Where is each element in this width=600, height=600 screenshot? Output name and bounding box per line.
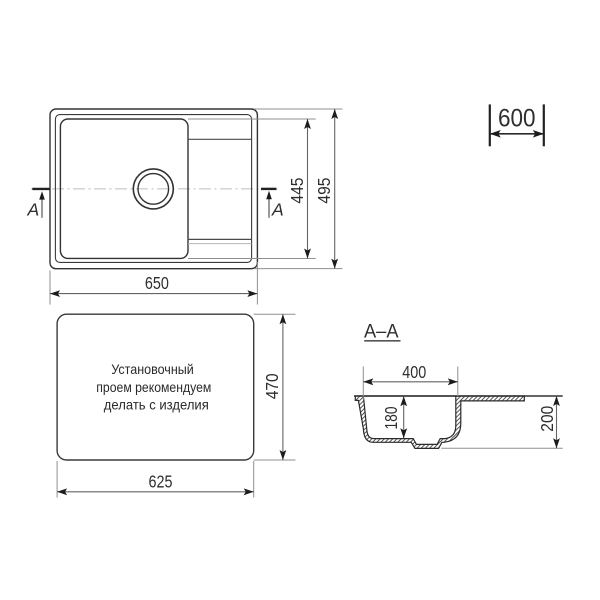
svg-text:A: A — [271, 200, 284, 220]
svg-text:проем рекомендуем: проем рекомендуем — [96, 379, 211, 395]
svg-text:Установочный: Установочный — [111, 361, 194, 377]
svg-text:A–A: A–A — [364, 321, 399, 342]
svg-text:470: 470 — [262, 373, 282, 399]
svg-text:A: A — [27, 200, 40, 220]
svg-text:625: 625 — [149, 471, 173, 491]
svg-text:495: 495 — [314, 178, 334, 204]
svg-text:180: 180 — [381, 407, 401, 430]
svg-text:200: 200 — [537, 406, 557, 432]
svg-text:445: 445 — [287, 178, 307, 204]
svg-text:400: 400 — [402, 362, 426, 382]
svg-text:делать с изделия: делать с изделия — [104, 397, 209, 413]
svg-text:650: 650 — [145, 273, 169, 293]
svg-text:600: 600 — [498, 105, 536, 133]
